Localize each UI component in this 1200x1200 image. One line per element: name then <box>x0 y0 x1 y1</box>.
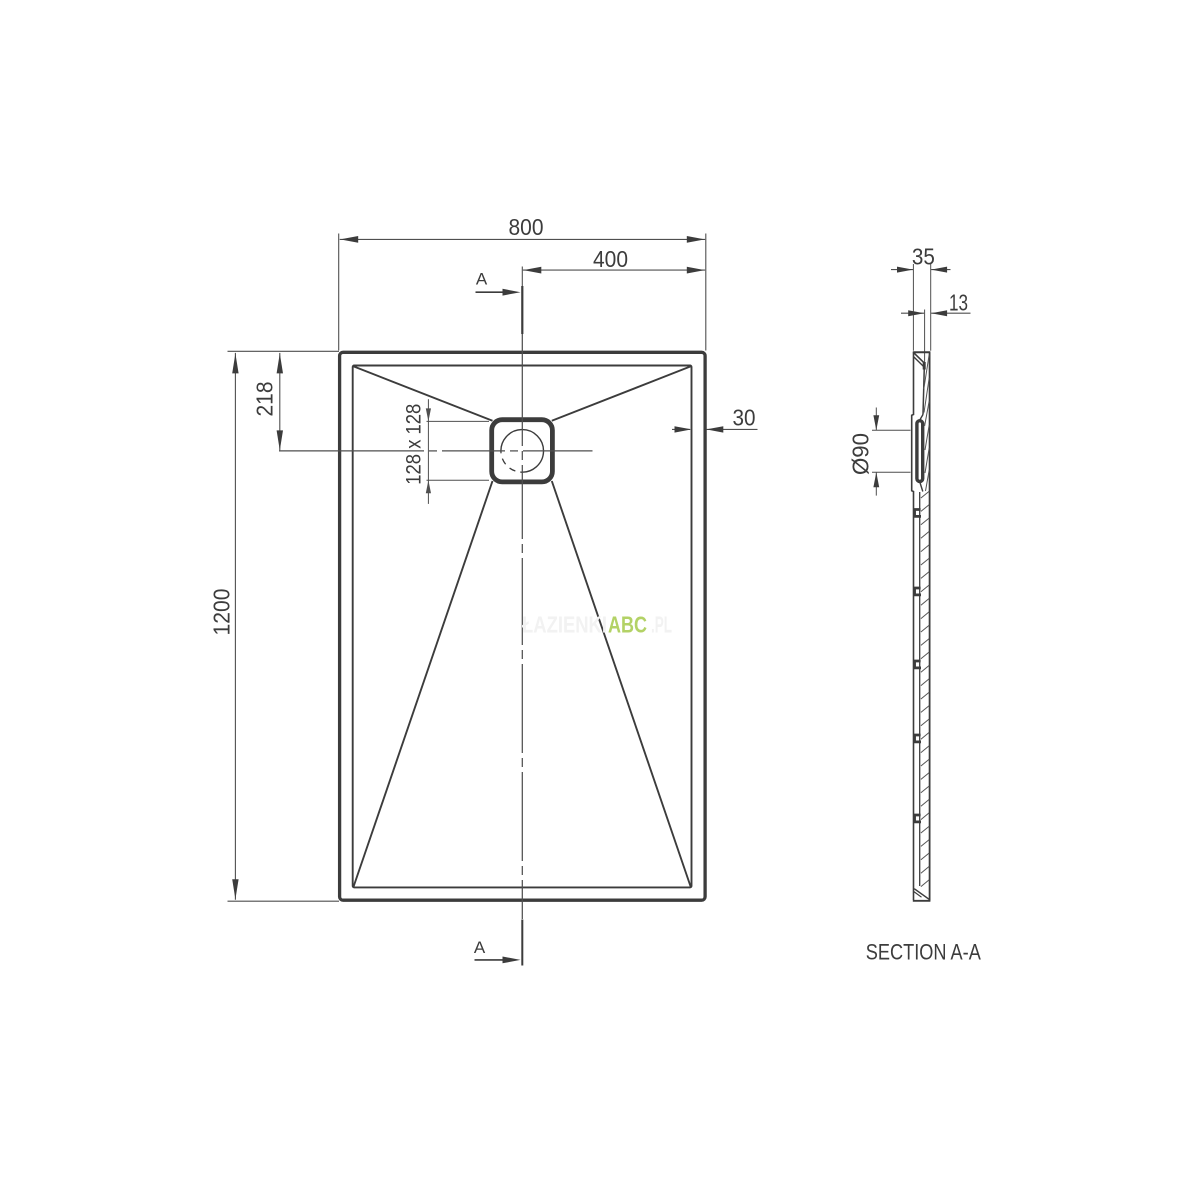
svg-text:A: A <box>474 938 486 957</box>
svg-text:ŁAZIENKI: ŁAZIENKI <box>522 612 607 638</box>
svg-text:35: 35 <box>912 243 935 269</box>
svg-text:128 x 128: 128 x 128 <box>403 404 426 485</box>
svg-text:218: 218 <box>252 382 278 417</box>
svg-text:30: 30 <box>733 405 756 431</box>
svg-text:SECTION A-A: SECTION A-A <box>866 940 981 965</box>
svg-text:.PL: .PL <box>651 612 672 638</box>
svg-text:800: 800 <box>509 214 544 240</box>
svg-text:A: A <box>476 270 488 289</box>
svg-text:ABC: ABC <box>608 612 647 638</box>
svg-text:400: 400 <box>593 246 628 272</box>
svg-text:13: 13 <box>949 290 968 316</box>
svg-text:1200: 1200 <box>209 589 235 636</box>
svg-text:Ø90: Ø90 <box>848 433 874 475</box>
